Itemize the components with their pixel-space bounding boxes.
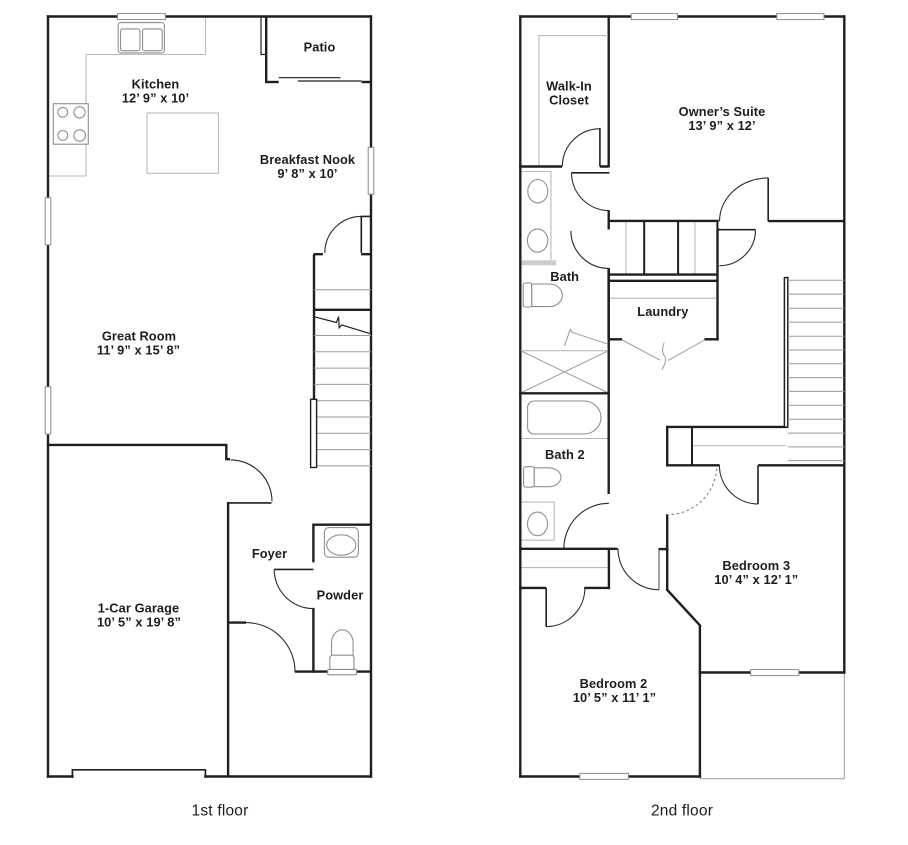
svg-text:2nd floor: 2nd floor xyxy=(651,803,713,820)
svg-text:Closet: Closet xyxy=(549,93,589,108)
svg-text:Bedroom 2: Bedroom 2 xyxy=(580,676,648,691)
svg-text:Laundry: Laundry xyxy=(637,304,689,319)
svg-text:Powder: Powder xyxy=(317,588,364,603)
svg-text:Great Room: Great Room xyxy=(102,329,176,344)
svg-text:1st floor: 1st floor xyxy=(192,803,249,820)
svg-text:Owner’s Suite: Owner’s Suite xyxy=(679,104,766,119)
svg-text:Walk-In: Walk-In xyxy=(546,79,592,94)
svg-text:Foyer: Foyer xyxy=(252,546,287,561)
svg-text:Breakfast Nook: Breakfast Nook xyxy=(260,152,356,167)
svg-text:Bath 2: Bath 2 xyxy=(545,447,585,462)
svg-text:10’ 5” x 11’ 1”: 10’ 5” x 11’ 1” xyxy=(573,690,656,705)
svg-text:Kitchen: Kitchen xyxy=(132,77,180,92)
svg-text:9’ 8” x 10’: 9’ 8” x 10’ xyxy=(277,166,337,181)
svg-text:13’ 9” x 12’: 13’ 9” x 12’ xyxy=(688,118,755,133)
svg-text:10’ 4” x 12’ 1”: 10’ 4” x 12’ 1” xyxy=(714,572,798,587)
svg-text:Bedroom 3: Bedroom 3 xyxy=(722,558,790,573)
svg-text:12’ 9” x 10’: 12’ 9” x 10’ xyxy=(122,90,189,105)
svg-text:10’ 5” x 19’ 8”: 10’ 5” x 19’ 8” xyxy=(97,615,181,630)
svg-text:1-Car Garage: 1-Car Garage xyxy=(98,601,180,616)
svg-text:Patio: Patio xyxy=(304,40,336,55)
svg-text:11’ 9” x 15’ 8”: 11’ 9” x 15’ 8” xyxy=(97,343,180,358)
svg-text:Bath: Bath xyxy=(550,269,579,284)
